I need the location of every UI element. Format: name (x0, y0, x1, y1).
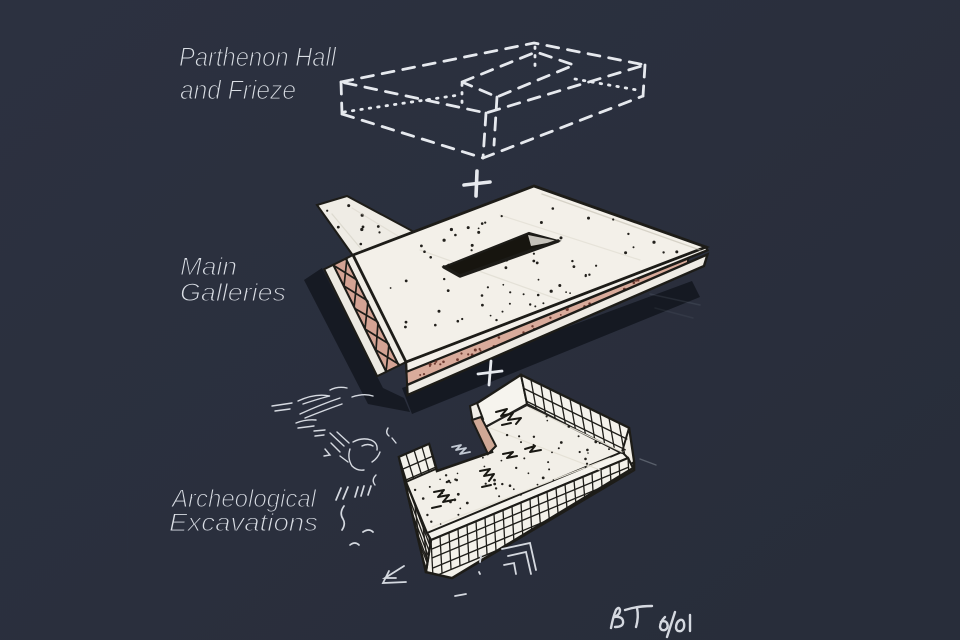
svg-text:Main: Main (180, 253, 237, 281)
svg-text:and Frieze: and Frieze (180, 75, 296, 105)
svg-text:Excavations: Excavations (169, 509, 318, 537)
svg-text:Galleries: Galleries (180, 279, 286, 307)
svg-text:Parthenon Hall: Parthenon Hall (179, 42, 337, 72)
